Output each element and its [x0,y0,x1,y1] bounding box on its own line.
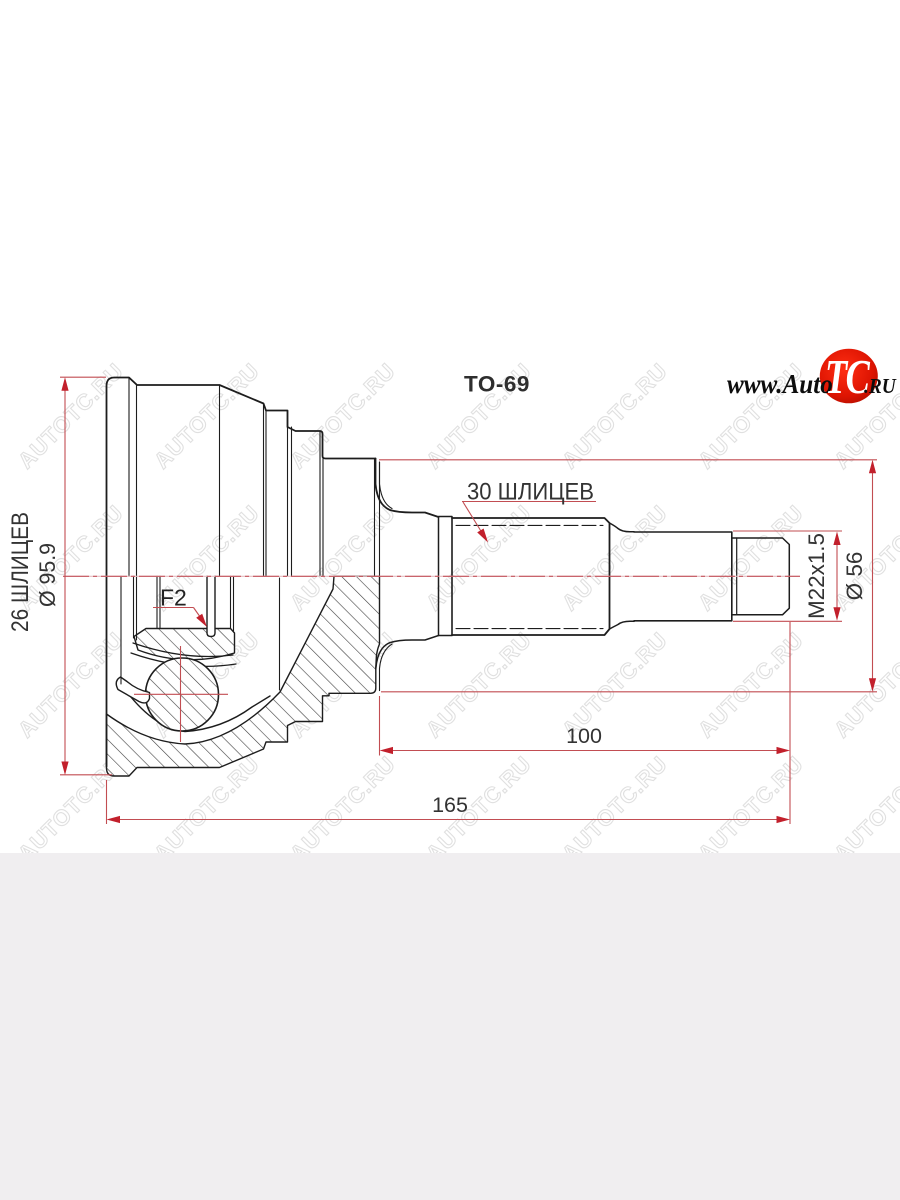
svg-text:100: 100 [566,724,602,748]
svg-text:26 ШЛИЦЕВ: 26 ШЛИЦЕВ [7,512,34,632]
svg-text:www.Auto: www.Auto [727,369,833,399]
svg-text:165: 165 [432,793,468,817]
svg-text:M22x1.5: M22x1.5 [804,533,829,619]
svg-text:F2: F2 [160,585,187,611]
svg-text:Ø 56: Ø 56 [842,552,867,601]
svg-text:Ø 95.9: Ø 95.9 [35,543,60,607]
svg-text:.RU: .RU [864,375,897,398]
svg-text:TO-69: TO-69 [464,372,530,397]
svg-text:30 ШЛИЦЕВ: 30 ШЛИЦЕВ [467,479,594,506]
